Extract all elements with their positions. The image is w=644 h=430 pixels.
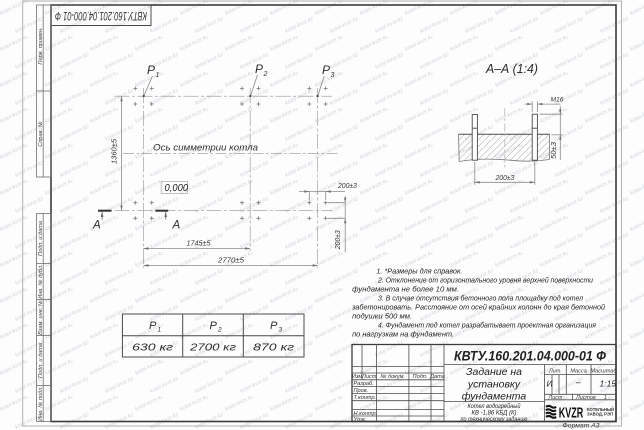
svg-text:4. Фундамент под котел разраб: 4. Фундамент под котел разрабатывает про…: [378, 321, 596, 330]
svg-text:Инв. № подл.: Инв. № подл.: [38, 386, 44, 421]
svg-text:А–А (1:4): А–А (1:4): [485, 62, 538, 76]
svg-text:2. Отклонение от горизонтальн: 2. Отклонение от горизонтального уровня …: [377, 276, 594, 285]
svg-text:Лит.: Лит.: [548, 368, 562, 374]
svg-text:Пров.: Пров.: [354, 388, 369, 394]
svg-text:1. *Размеры для справок.: 1. *Размеры для справок.: [376, 267, 462, 276]
svg-text:Дата: Дата: [429, 374, 445, 380]
svg-text:забетонировать. Расстояние от: забетонировать. Расстояние от осей крайн…: [351, 303, 606, 312]
svg-text:КВТУ.160.201.04.000-01 Ф: КВТУ.160.201.04.000-01 Ф: [55, 9, 147, 23]
svg-text:Задание на: Задание на: [466, 366, 522, 378]
svg-text:установку: установку: [467, 379, 521, 391]
svg-text:Подп.: Подп.: [413, 374, 428, 380]
svg-text:P: P: [270, 320, 278, 332]
svg-text:A: A: [92, 220, 101, 232]
svg-text:Перв. примен.: Перв. примен.: [38, 27, 44, 64]
svg-text:Взам. инв. №: Взам. инв. №: [38, 300, 44, 335]
svg-text:Ось симметрии котла: Ось симметрии котла: [153, 143, 258, 154]
svg-text:P: P: [149, 320, 157, 332]
svg-text:Листов: Листов: [575, 395, 596, 401]
svg-text:по нагрузкам на фундамент.: по нагрузкам на фундамент.: [352, 330, 454, 339]
svg-text:2700 кг: 2700 кг: [189, 342, 236, 354]
svg-text:3: 3: [279, 327, 283, 334]
svg-text:1: 1: [604, 395, 607, 401]
svg-text:1: 1: [158, 327, 162, 334]
svg-text:фундамента не более 10 мм.: фундамента не более 10 мм.: [352, 285, 459, 294]
svg-text:1:15: 1:15: [600, 379, 617, 389]
svg-text:1: 1: [156, 72, 160, 79]
svg-text:P: P: [147, 63, 155, 77]
svg-text:1745±5: 1745±5: [187, 239, 212, 248]
svg-text:3: 3: [331, 72, 335, 79]
svg-text:Масштаб: Масштаб: [590, 368, 617, 374]
svg-text:630 кг: 630 кг: [132, 342, 173, 354]
svg-text:Лист: Лист: [361, 374, 377, 380]
svg-text:Утв.: Утв.: [353, 417, 367, 423]
svg-text:–: –: [575, 377, 581, 387]
svg-text:P: P: [255, 62, 263, 76]
svg-text:1360±5: 1360±5: [110, 138, 119, 164]
svg-text:Котел водогрейный: Котел водогрейный: [468, 402, 521, 410]
svg-text:ЗАВОД, РЭП: ЗАВОД, РЭП: [587, 411, 613, 416]
svg-text:2: 2: [217, 327, 222, 334]
svg-text:KVZR: KVZR: [559, 406, 584, 422]
svg-text:фундамента: фундамента: [462, 391, 527, 403]
svg-text:A: A: [172, 220, 181, 232]
svg-text:200±3: 200±3: [495, 175, 515, 182]
svg-text:Масса: Масса: [570, 368, 587, 374]
svg-text:Т.контр.: Т.контр.: [354, 395, 377, 401]
svg-text:Разраб.: Разраб.: [354, 381, 374, 387]
svg-text:Инв. № дубл.: Инв. № дубл.: [38, 264, 44, 298]
svg-text:И: И: [547, 379, 554, 389]
svg-text:М16: М16: [551, 97, 564, 104]
svg-text:2770±5: 2770±5: [217, 255, 245, 264]
svg-text:50±3: 50±3: [551, 142, 558, 159]
svg-text:0,000: 0,000: [165, 183, 189, 194]
svg-text:870 кг: 870 кг: [253, 342, 294, 354]
svg-text:200±3: 200±3: [335, 230, 342, 250]
svg-text:Подп. и дата: Подп. и дата: [38, 221, 44, 256]
svg-text:Подп. и дата: Подп. и дата: [38, 343, 44, 378]
svg-text:Справ. №: Справ. №: [38, 121, 44, 146]
svg-text:Изм: Изм: [352, 374, 363, 380]
svg-text:КВТУ.160.201.04.000-01 Ф: КВТУ.160.201.04.000-01 Ф: [454, 348, 606, 364]
svg-text:подушки 500 мм.: подушки 500 мм.: [352, 312, 412, 321]
svg-text:3. В случае отсутствия бетонн: 3. В случае отсутствия бетонного пола пл…: [378, 294, 584, 303]
svg-text:по техническому заданию: по техническому заданию: [461, 415, 528, 423]
svg-text:P: P: [322, 63, 330, 77]
svg-text:Формат А3: Формат А3: [562, 422, 599, 429]
svg-text:№ докум.: № докум.: [380, 374, 405, 380]
svg-text:P: P: [210, 320, 218, 332]
svg-text:2: 2: [263, 71, 268, 78]
svg-text:200±3: 200±3: [337, 183, 357, 190]
svg-text:Лист: Лист: [548, 395, 563, 401]
